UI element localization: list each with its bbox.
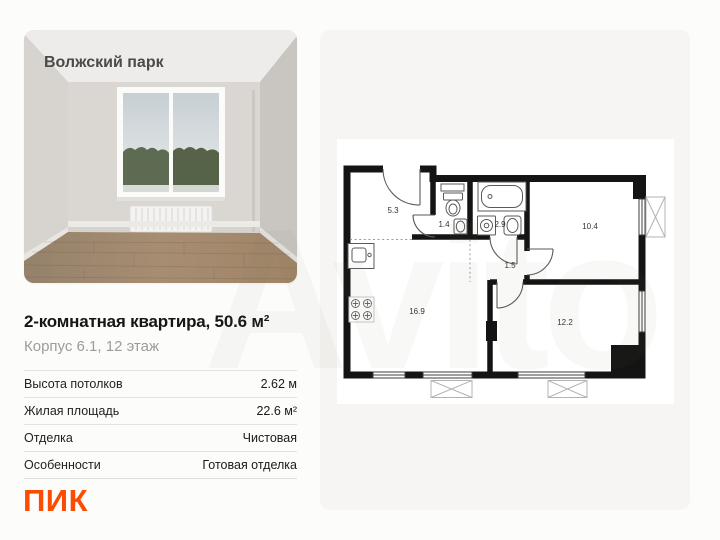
project-title: Волжский парк (44, 54, 165, 71)
room-label-hallway: 5.3 (387, 206, 399, 215)
listing-subtitle: Корпус 6.1, 12 этаж (24, 338, 159, 355)
room-label-bedroom: 10.4 (582, 222, 598, 231)
bathtub-icon (478, 182, 526, 211)
apartment-photo: Волжский парк (24, 30, 297, 283)
pik-logo: ПИК (23, 483, 88, 519)
wooden-floor (24, 232, 297, 283)
spec-row-finishing: Отделка Чистовая (24, 424, 297, 451)
spec-row-living-area: Жилая площадь 22.6 м² (24, 397, 297, 424)
washing-machine-icon (478, 216, 496, 235)
floorplan-canvas: 5.3 1.4 2.9 10.4 1.5 16.9 12.2 (337, 139, 674, 404)
spec-value: Чистовая (243, 431, 297, 445)
spec-label: Высота потолков (24, 377, 123, 391)
room-label-kitchen-living: 16.9 (409, 307, 425, 316)
spec-value: 2.62 м (261, 377, 297, 391)
listing-card: Волжский парк 2-комнатная квартира, 50.6… (0, 0, 720, 540)
floorplan-drawing: 5.3 1.4 2.9 10.4 1.5 16.9 12.2 (337, 139, 674, 404)
listing-title: 2-комнатная квартира, 50.6 м² (24, 312, 304, 332)
room-label-wc: 1.4 (438, 220, 450, 229)
room-label-room: 12.2 (557, 318, 573, 327)
spec-value: Готовая отделка (202, 458, 297, 472)
spec-row-features: Особенности Готовая отделка (24, 451, 297, 478)
floorplan-card: 5.3 1.4 2.9 10.4 1.5 16.9 12.2 (320, 30, 690, 510)
toilet-icon (441, 184, 464, 216)
room-label-inner-corridor: 1.5 (504, 261, 516, 270)
spec-value: 22.6 м² (256, 404, 297, 418)
bathroom-sink-icon (504, 216, 521, 235)
window (117, 87, 225, 201)
radiator (130, 206, 212, 232)
specs-table: Высота потолков 2.62 м Жилая площадь 22.… (24, 370, 297, 479)
spec-label: Жилая площадь (24, 404, 119, 418)
spec-label: Особенности (24, 458, 101, 472)
spec-row-ceiling-height: Высота потолков 2.62 м (24, 370, 297, 397)
spec-label: Отделка (24, 431, 73, 445)
room-photo-illustration: Волжский парк (24, 30, 297, 283)
stove-icon (349, 297, 374, 322)
wc-sink-icon (454, 219, 467, 234)
kitchen-sink-icon (348, 244, 374, 269)
wall-pipe (252, 90, 255, 232)
room-label-bathroom: 2.9 (494, 220, 506, 229)
